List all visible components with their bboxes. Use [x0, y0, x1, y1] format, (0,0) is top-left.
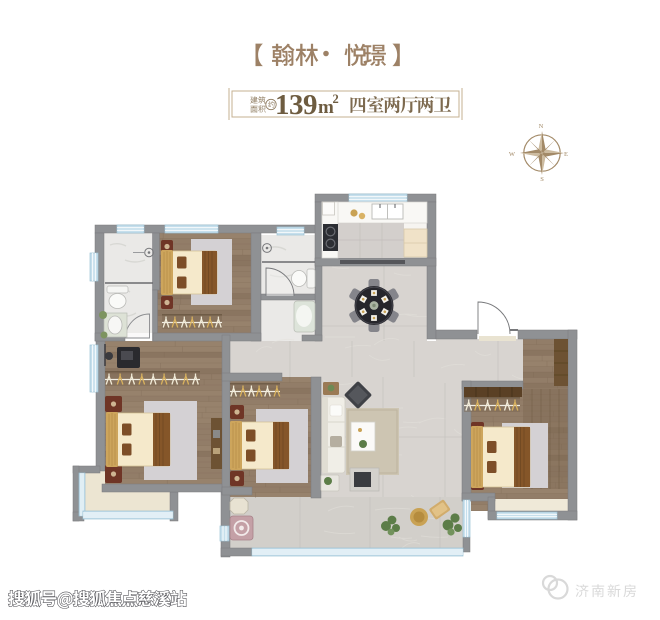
svg-text:S: S — [540, 176, 544, 183]
svg-text:N: N — [539, 123, 544, 130]
svg-text:139: 139 — [275, 89, 317, 121]
svg-text:E: E — [564, 151, 568, 158]
svg-text:2: 2 — [333, 92, 339, 106]
svg-text:W: W — [509, 151, 516, 158]
